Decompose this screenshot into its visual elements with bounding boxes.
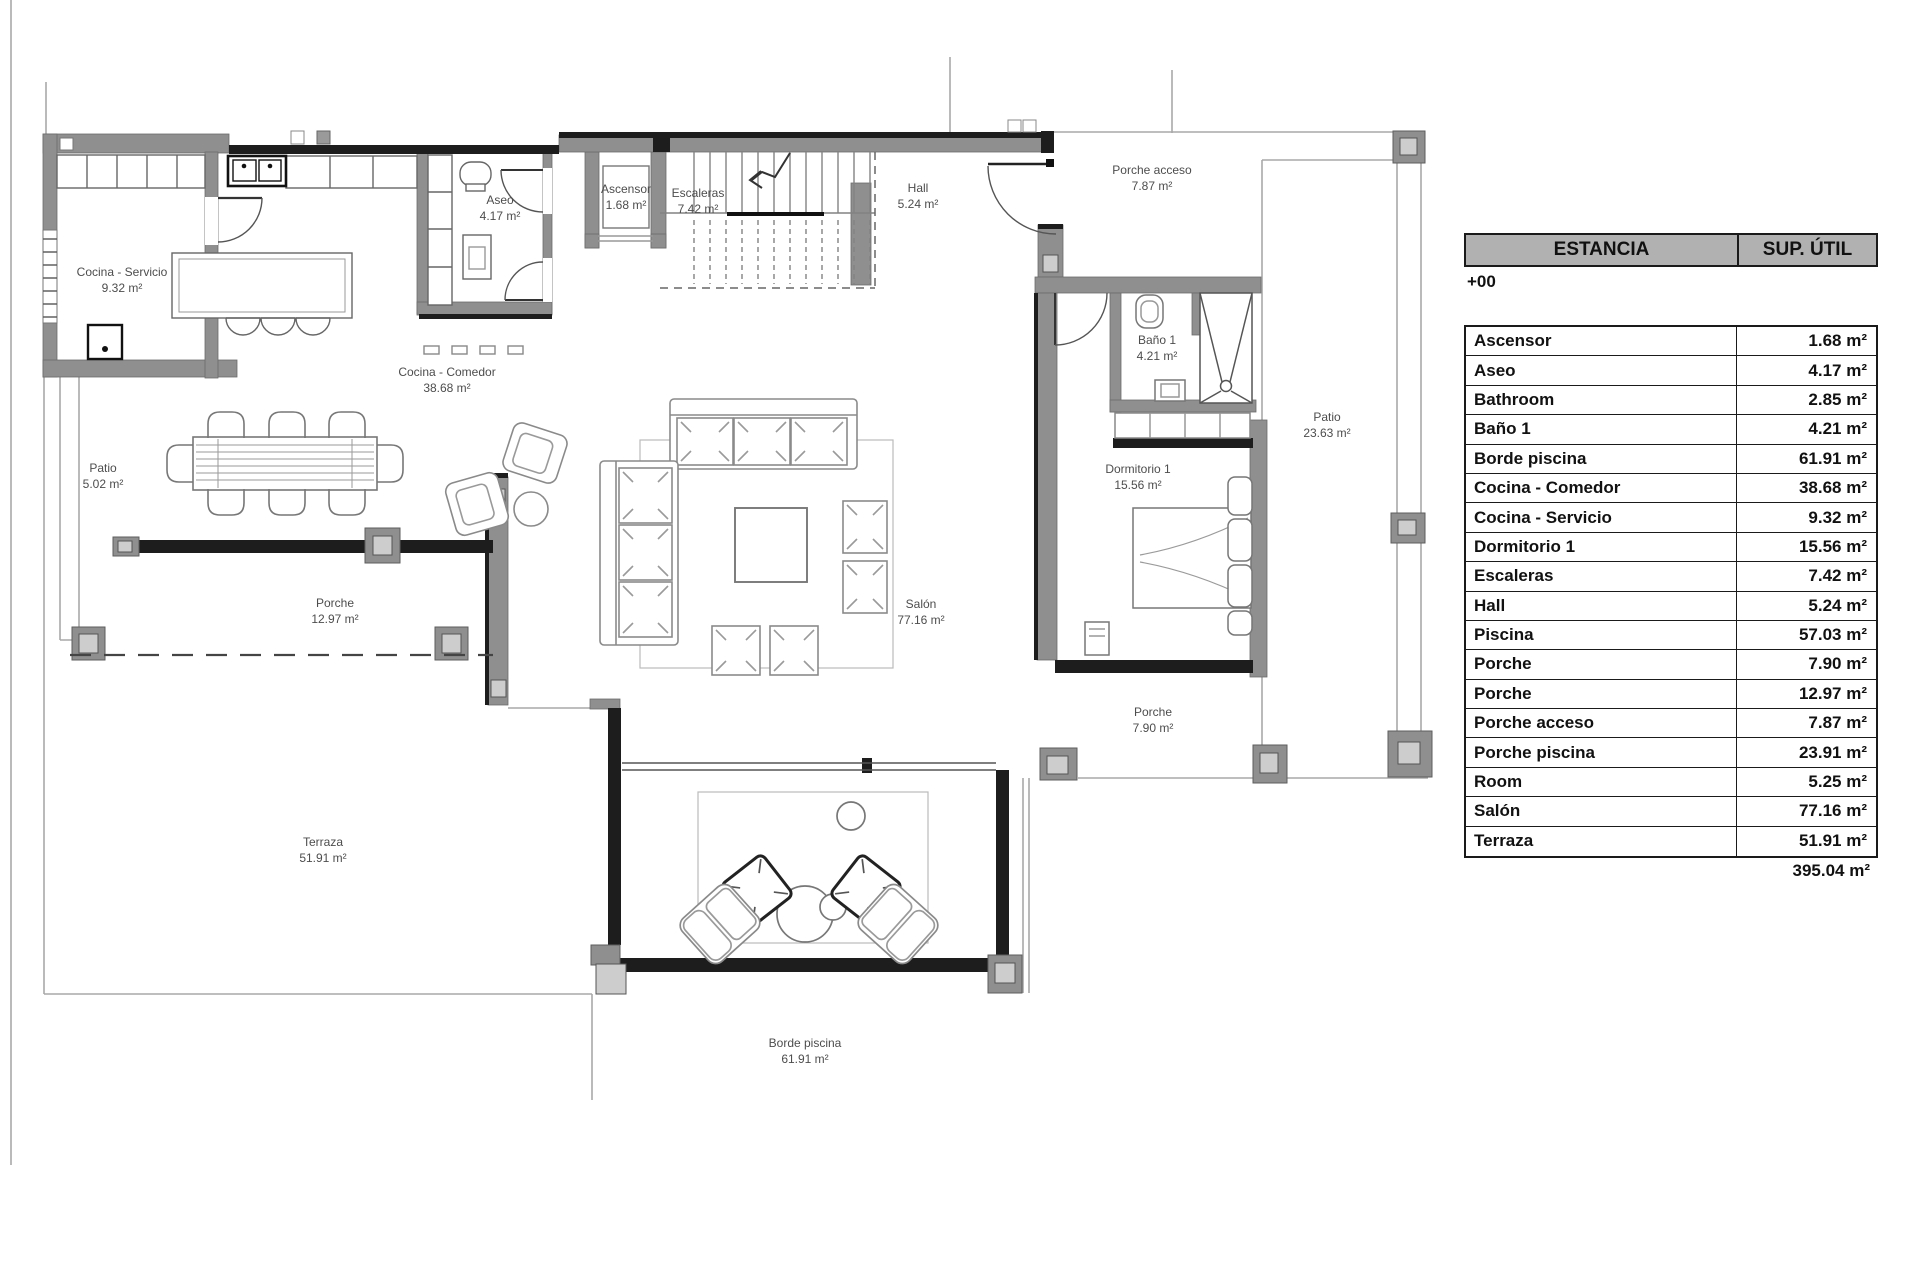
floorplan-page: Cocina - Servicio9.32 m² Aseo4.17 m² Asc… (0, 0, 1920, 1280)
table-row: Hall5.24 m² (1466, 592, 1876, 621)
table-row: Bathroom2.85 m² (1466, 386, 1876, 415)
plan-label-ascensor: Ascensor1.68 m² (601, 182, 651, 214)
schedule-header: ESTANCIA SUP. ÚTIL (1464, 233, 1878, 267)
stairs-icon (660, 152, 875, 288)
table-row: Aseo4.17 m² (1466, 356, 1876, 385)
stairs-direction-arrow (750, 153, 790, 188)
bedroom-furniture (1085, 413, 1252, 655)
glazing-lines (622, 763, 996, 770)
table-row: Cocina - Servicio9.32 m² (1466, 503, 1876, 532)
plan-label-porche-comedor: Porche12.97 m² (311, 596, 358, 628)
table-row: Escaleras7.42 m² (1466, 562, 1876, 591)
table-row: Dormitorio 115.56 m² (1466, 533, 1876, 562)
table-row: Piscina57.03 m² (1466, 621, 1876, 650)
plan-label-terraza: Terraza51.91 m² (299, 835, 346, 867)
total-area-value: 395.04 m² (1793, 861, 1871, 881)
plan-label-bano-1: Baño 14.21 m² (1137, 333, 1178, 365)
living-room-furniture (600, 399, 893, 675)
table-row: Porche12.97 m² (1466, 680, 1876, 709)
plan-label-patio-chico: Patio5.02 m² (83, 461, 124, 493)
table-row: Salón77.16 m² (1466, 797, 1876, 826)
plan-label-hall: Hall5.24 m² (898, 181, 939, 213)
dining-set (167, 412, 403, 515)
plan-label-escaleras: Escaleras7.42 m² (672, 186, 725, 218)
table-row: Terraza51.91 m² (1466, 827, 1876, 856)
plan-label-cocina-comedor: Cocina - Comedor38.68 m² (398, 365, 495, 397)
plan-label-aseo: Aseo4.17 m² (480, 193, 521, 225)
plan-label-cocina-servicio: Cocina - Servicio9.32 m² (77, 265, 168, 297)
pool-terrace-furniture (676, 792, 942, 968)
table-row: Porche7.90 m² (1466, 650, 1876, 679)
plan-label-salon: Salón77.16 m² (897, 597, 944, 629)
room-schedule: ESTANCIA SUP. ÚTIL +00 Ascensor1.68 m² A… (1464, 233, 1878, 267)
plan-label-porche-dormitorio: Porche7.90 m² (1133, 705, 1174, 737)
table-row: Borde piscina61.91 m² (1466, 445, 1876, 474)
plan-label-borde-piscina: Borde piscina61.91 m² (769, 1036, 842, 1068)
table-row: Porche piscina23.91 m² (1466, 738, 1876, 767)
plan-label-porche-acceso: Porche acceso7.87 m² (1112, 163, 1191, 195)
schedule-rows: Ascensor1.68 m² Aseo4.17 m² Bathroom2.85… (1464, 325, 1878, 858)
floor-level-label: +00 (1467, 272, 1496, 292)
table-row: Baño 14.21 m² (1466, 415, 1876, 444)
table-row: Cocina - Comedor38.68 m² (1466, 474, 1876, 503)
kitchen-fixtures (57, 155, 523, 359)
table-row: Room5.25 m² (1466, 768, 1876, 797)
schedule-header-room: ESTANCIA (1466, 235, 1739, 265)
table-row: Porche acceso7.87 m² (1466, 709, 1876, 738)
table-row: Ascensor1.68 m² (1466, 327, 1876, 356)
plan-label-patio-grande: Patio23.63 m² (1303, 410, 1350, 442)
plan-label-dormitorio-1: Dormitorio 115.56 m² (1105, 462, 1170, 494)
schedule-header-area: SUP. ÚTIL (1739, 235, 1876, 265)
